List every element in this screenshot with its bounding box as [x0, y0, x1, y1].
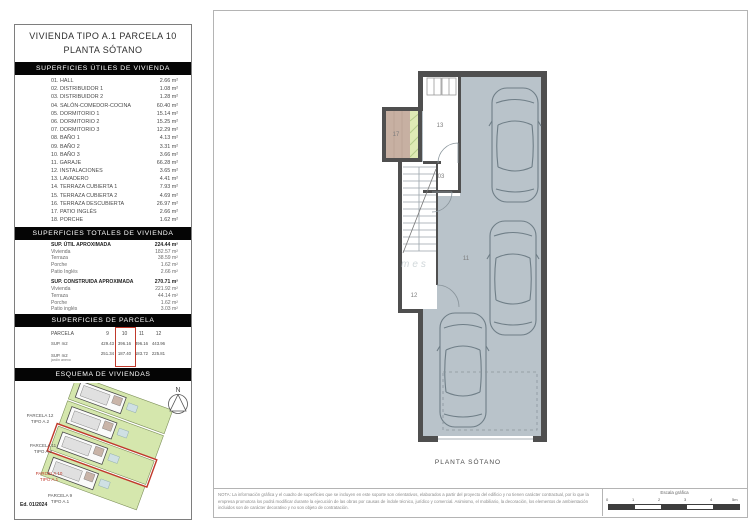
- total-item-label: Patio Inglés: [51, 269, 78, 276]
- total-item-value: 3.03 m²: [161, 306, 178, 313]
- parcel-cell: 12: [150, 329, 167, 339]
- surface-row-label: 11. GARAJE: [51, 159, 81, 167]
- total-item-row: Terraza44.14 m²: [15, 293, 191, 300]
- surface-row-value: 1.28 m²: [160, 93, 178, 101]
- scale-tick: 0: [606, 497, 608, 502]
- parcel-label: PARCELA 12: [27, 413, 54, 418]
- header-scheme: ESQUEMA DE VIVIENDAS: [15, 368, 191, 381]
- total-item-row: Patio Inglés2.66 m²: [15, 269, 191, 276]
- surface-row-value: 4.41 m²: [160, 175, 178, 183]
- surface-row-value: 3.65 m²: [160, 167, 178, 175]
- parcel-label: PARCELA 9: [48, 493, 73, 498]
- parcel-label: TIPO A.2: [34, 449, 53, 454]
- scale-ticks: 0 1 2 3 4 5m: [606, 497, 743, 502]
- floor-plan-drawing: mes 17 13 03 12 11: [368, 55, 568, 465]
- total-item-row: Vivienda221.92 m²: [15, 286, 191, 293]
- total-group-header: SUP. CONSTRUIDA APROXIMADA270.71 m²: [15, 279, 191, 286]
- surface-row: 12. INSTALACIONES3.65 m²: [15, 167, 191, 175]
- note-line: incluidos son de carácter decorativo y n…: [218, 505, 596, 512]
- room-label-distribuidor: 03: [438, 174, 445, 180]
- surface-row: 11. GARAJE66.28 m²: [15, 159, 191, 167]
- titleblock-vertical-divider: [602, 488, 603, 516]
- note-line: NOTA: La información gráfica y el cuadro…: [218, 492, 596, 499]
- surface-row: 05. DORMITORIO 115.14 m²: [15, 110, 191, 118]
- surface-row-label: 06. DORMITORIO 2: [51, 118, 99, 126]
- parcel-row: SUP. m2429.43396.16396.16443.96: [15, 339, 191, 349]
- parcel-highlight-box: [115, 327, 136, 367]
- header-useful-surfaces: SUPERFICIES ÚTILES DE VIVIENDA: [15, 62, 191, 75]
- surface-row-label: 15. TERRAZA CUBIERTA 2: [51, 192, 117, 200]
- total-item-value: 2.66 m²: [161, 269, 178, 276]
- parcel-cell: 9: [99, 329, 116, 339]
- plan-caption: PLANTA SÓTANO: [368, 459, 568, 466]
- total-item-label: Terraza: [51, 255, 68, 262]
- header-parcel-surfaces: SUPERFICIES DE PARCELA: [15, 314, 191, 327]
- surface-row-value: 2.66 m²: [160, 77, 178, 85]
- parcel-cell: 443.96: [150, 339, 167, 349]
- scale-tick: 3: [684, 497, 686, 502]
- surface-row-value: 4.69 m²: [160, 192, 178, 200]
- surface-row: 08. BAÑO 14.13 m²: [15, 134, 191, 142]
- north-label: N: [175, 387, 180, 394]
- surface-row-label: 18. PORCHE: [51, 216, 83, 224]
- north-compass-icon: N: [169, 387, 188, 414]
- parcel-row-label: PARCELA: [51, 329, 99, 339]
- total-item-value: 221.92 m²: [155, 286, 178, 293]
- total-item-label: Porche: [51, 262, 67, 269]
- surface-row-value: 4.13 m²: [160, 134, 178, 142]
- surface-row-value: 3.31 m²: [160, 143, 178, 151]
- surface-row: 17. PATIO INGLÉS2.66 m²: [15, 208, 191, 216]
- total-item-value: 182.57 m²: [155, 249, 178, 256]
- total-item-value: 38.59 m²: [158, 255, 178, 262]
- surface-row: 01. HALL2.66 m²: [15, 77, 191, 85]
- surface-row-value: 15.25 m²: [157, 118, 178, 126]
- surface-row-value: 15.14 m²: [157, 110, 178, 118]
- useful-surfaces-rows: 01. HALL2.66 m²02. DISTRIBUIDOR 11.08 m²…: [15, 77, 191, 224]
- total-group-value: 270.71 m²: [155, 279, 178, 286]
- surface-row-label: 07. DORMITORIO 3: [51, 126, 99, 134]
- total-item-label: Porche: [51, 300, 67, 307]
- surface-row: 03. DISTRIBUIDOR 21.28 m²: [15, 93, 191, 101]
- parcel-label-highlighted: PARCELA 10: [36, 471, 63, 476]
- parcel-table: PARCELA9101112SUP. m2429.43396.16396.164…: [15, 329, 191, 365]
- surface-row: 14. TERRAZA CUBIERTA 17.93 m²: [15, 183, 191, 191]
- parcel-row: SUP. m2jardín anexo251.34187.40183.72225…: [15, 349, 191, 365]
- total-item-label: Patio inglés: [51, 306, 77, 313]
- surface-row-label: 03. DISTRIBUIDOR 2: [51, 93, 103, 101]
- total-item-label: Terraza: [51, 293, 68, 300]
- parcel-row-label: SUP. m2: [51, 339, 99, 349]
- total-group-label: SUP. ÚTIL APROXIMADA: [51, 242, 111, 249]
- total-item-value: 1.62 m²: [161, 300, 178, 307]
- surface-row: 02. DISTRIBUIDOR 11.08 m²: [15, 85, 191, 93]
- parcel-row-label-sub: jardín anexo: [51, 358, 99, 363]
- surface-row-label: 04. SALÓN-COMEDOR-COCINA: [51, 102, 131, 110]
- surface-row-label: 14. TERRAZA CUBIERTA 1: [51, 183, 117, 191]
- surface-row-value: 1.08 m²: [160, 85, 178, 93]
- surface-row: 09. BAÑO 23.31 m²: [15, 143, 191, 151]
- parcel-label: PARCELA 11: [30, 443, 57, 448]
- surface-summary-panel: VIVIENDA TIPO A.1 PARCELA 10 PLANTA SÓTA…: [14, 24, 192, 520]
- total-item-value: 44.14 m²: [158, 293, 178, 300]
- surface-row-value: 3.66 m²: [160, 151, 178, 159]
- disclaimer-note: NOTA: La información gráfica y el cuadro…: [218, 492, 596, 512]
- panel-title-line1: VIVIENDA TIPO A.1 PARCELA 10: [15, 31, 191, 41]
- patio-ingles-area: [386, 111, 422, 158]
- surface-row-label: 13. LAVADERO: [51, 175, 89, 183]
- surface-row-value: 66.28 m²: [157, 159, 178, 167]
- scale-label: Escala gráfica: [604, 490, 745, 495]
- total-item-label: Vivienda: [51, 286, 70, 293]
- parcel-row-label-main: PARCELA: [51, 329, 99, 339]
- surface-row-label: 10. BAÑO 3: [51, 151, 80, 159]
- surface-row: 07. DORMITORIO 312.29 m²: [15, 126, 191, 134]
- scale-tick: 1: [632, 497, 634, 502]
- surface-row-value: 12.29 m²: [157, 126, 178, 134]
- room-label-instalaciones: 12: [411, 293, 418, 299]
- stair-area: [402, 162, 437, 309]
- surface-row-label: 01. HALL: [51, 77, 73, 85]
- surface-row-label: 09. BAÑO 2: [51, 143, 80, 151]
- scale-tick: 4: [710, 497, 712, 502]
- scale-tick: 5m: [732, 497, 738, 502]
- surface-row: 06. DORMITORIO 215.25 m²: [15, 118, 191, 126]
- parcel-row-label-main: SUP. m2: [51, 339, 99, 349]
- parcel-label: TIPO A.1: [51, 499, 70, 504]
- total-item-label: Vivienda: [51, 249, 70, 256]
- room-label-patio: 17: [393, 132, 400, 138]
- panel-title-line2: PLANTA SÓTANO: [15, 45, 191, 55]
- surface-row-label: 08. BAÑO 1: [51, 134, 80, 142]
- room-label-garaje: 11: [463, 256, 470, 262]
- total-group-header: SUP. ÚTIL APROXIMADA224.44 m²: [15, 242, 191, 249]
- parcel-label: TIPO A.2: [31, 419, 50, 424]
- surface-row-value: 2.66 m²: [160, 208, 178, 216]
- surface-row-value: 26.97 m²: [157, 200, 178, 208]
- surface-row: 04. SALÓN-COMEDOR-COCINA60.40 m²: [15, 102, 191, 110]
- total-item-row: Vivienda182.57 m²: [15, 249, 191, 256]
- total-item-row: Patio inglés3.03 m²: [15, 306, 191, 313]
- surface-row: 15. TERRAZA CUBIERTA 24.69 m²: [15, 192, 191, 200]
- parcel-label-highlighted: TIPO A.1: [40, 477, 59, 482]
- parcel-row: PARCELA9101112: [15, 329, 191, 339]
- edition-label: Ed. 01/2024: [20, 502, 47, 508]
- site-plan-drawing: PARCELA 12 TIPO A.2 PARCELA 11 TIPO A.2 …: [16, 383, 190, 517]
- total-surfaces-groups: SUP. ÚTIL APROXIMADA224.44 m²Vivienda182…: [15, 242, 191, 317]
- surface-row: 13. LAVADERO4.41 m²: [15, 175, 191, 183]
- surface-row: 10. BAÑO 33.66 m²: [15, 151, 191, 159]
- total-item-row: Porche1.62 m²: [15, 300, 191, 307]
- header-total-surfaces: SUPERFICIES TOTALES DE VIVIENDA: [15, 227, 191, 240]
- scale-bar: [608, 504, 740, 510]
- surface-row: 18. PORCHE1.62 m²: [15, 216, 191, 224]
- parcel-cell: 251.34: [99, 351, 116, 365]
- total-item-row: Terraza38.59 m²: [15, 255, 191, 262]
- parcel-cell: 429.43: [99, 339, 116, 349]
- surface-row: 16. TERRAZA DESCUBIERTA26.97 m²: [15, 200, 191, 208]
- surface-row-label: 12. INSTALACIONES: [51, 167, 103, 175]
- surface-row-value: 60.40 m²: [157, 102, 178, 110]
- parcel-cell: 225.81: [150, 351, 167, 365]
- surface-row-value: 1.62 m²: [160, 216, 178, 224]
- total-item-value: 1.62 m²: [161, 262, 178, 269]
- surface-row-label: 16. TERRAZA DESCUBIERTA: [51, 200, 124, 208]
- total-item-row: Porche1.62 m²: [15, 262, 191, 269]
- total-group-label: SUP. CONSTRUIDA APROXIMADA: [51, 279, 133, 286]
- note-line: empresa promotora los podrá modificar du…: [218, 499, 596, 506]
- surface-row-value: 7.93 m²: [160, 183, 178, 191]
- surface-row-label: 05. DORMITORIO 1: [51, 110, 99, 118]
- scale-tick: 2: [658, 497, 660, 502]
- parcels-group: [39, 383, 175, 511]
- room-label-lavadero: 13: [437, 123, 444, 129]
- watermark: mes: [401, 259, 429, 270]
- total-group-value: 224.44 m²: [155, 242, 178, 249]
- surface-row-label: 02. DISTRIBUIDOR 1: [51, 85, 103, 93]
- graphic-scale: Escala gráfica 0 1 2 3 4 5m: [604, 489, 745, 515]
- surface-row-label: 17. PATIO INGLÉS: [51, 208, 97, 216]
- parcel-row-label: SUP. m2jardín anexo: [51, 351, 99, 365]
